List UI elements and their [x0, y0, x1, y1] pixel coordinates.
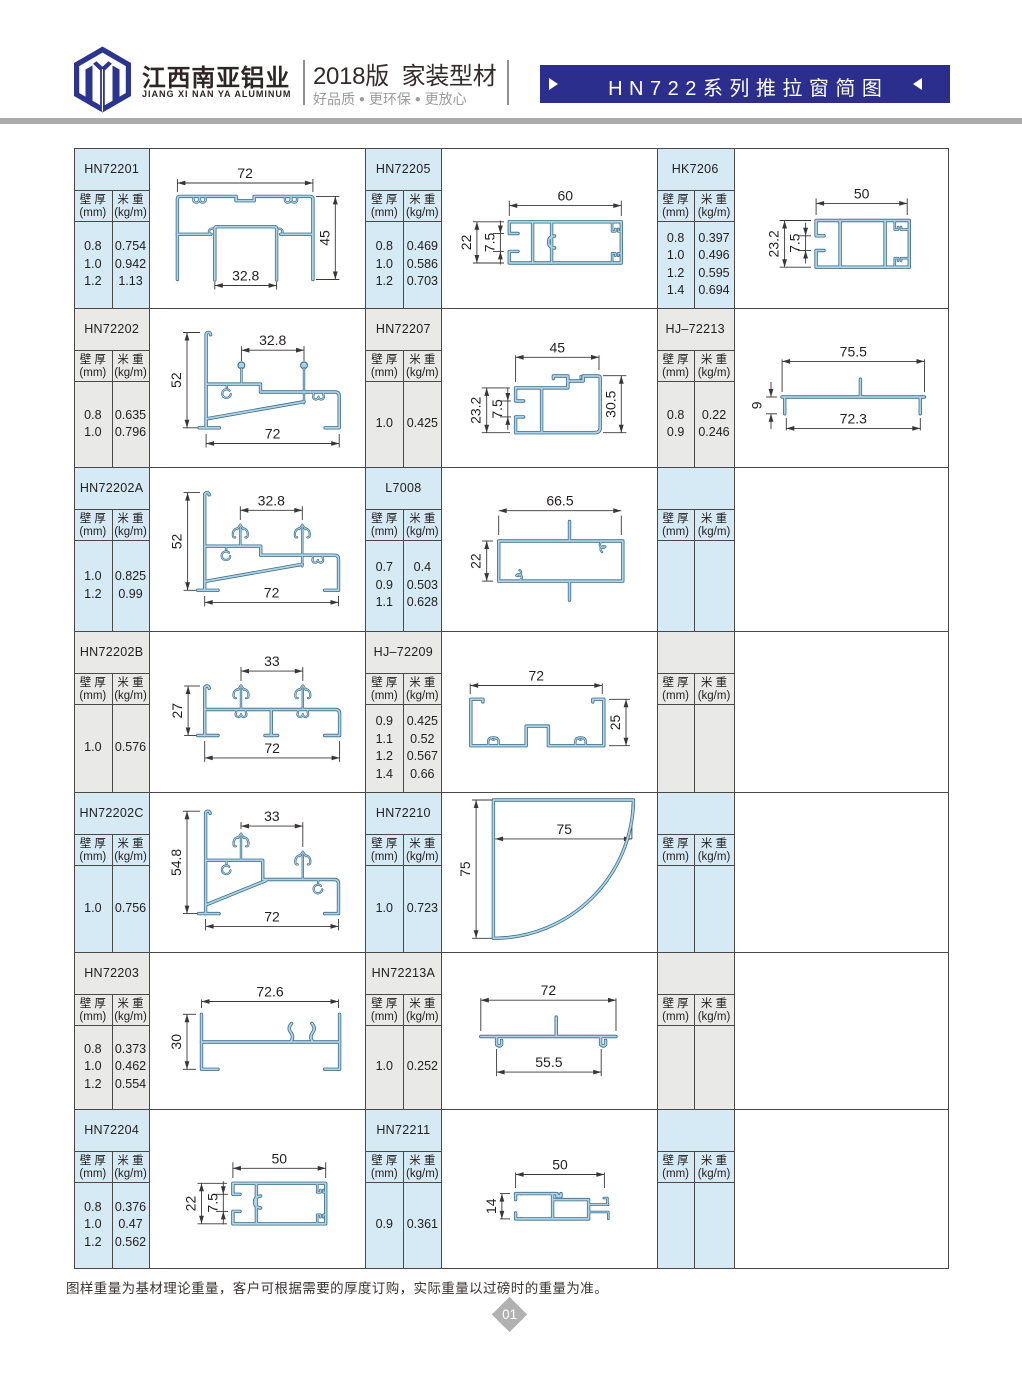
svg-text:50: 50: [272, 1150, 288, 1166]
svg-text:45: 45: [317, 230, 333, 246]
svg-text:50: 50: [553, 1157, 569, 1173]
svg-text:75: 75: [457, 861, 473, 877]
svg-text:22: 22: [458, 234, 474, 250]
svg-text:52: 52: [169, 533, 185, 549]
svg-text:66.5: 66.5: [547, 493, 574, 509]
svg-text:72: 72: [264, 584, 280, 600]
svg-text:72: 72: [265, 426, 281, 442]
svg-text:75.5: 75.5: [839, 343, 866, 359]
svg-text:52: 52: [168, 372, 184, 388]
svg-text:7.5: 7.5: [482, 233, 498, 253]
svg-text:7.5: 7.5: [205, 1193, 221, 1213]
svg-text:72: 72: [265, 908, 281, 924]
svg-text:72: 72: [238, 165, 254, 181]
svg-text:30: 30: [168, 1034, 184, 1050]
svg-text:45: 45: [550, 339, 566, 355]
svg-text:72: 72: [529, 668, 545, 684]
svg-text:72.3: 72.3: [839, 410, 866, 426]
svg-text:14: 14: [483, 1198, 499, 1214]
svg-text:30.5: 30.5: [603, 390, 619, 417]
svg-text:75: 75: [557, 821, 573, 837]
svg-text:72.6: 72.6: [257, 984, 284, 1000]
svg-text:72: 72: [541, 982, 557, 998]
svg-text:32.8: 32.8: [259, 332, 286, 348]
svg-text:33: 33: [264, 808, 280, 824]
svg-text:54.8: 54.8: [168, 849, 184, 876]
svg-text:25: 25: [607, 715, 623, 731]
svg-text:9: 9: [748, 401, 764, 409]
svg-text:33: 33: [264, 653, 280, 669]
svg-text:55.5: 55.5: [536, 1054, 563, 1070]
svg-text:23.2: 23.2: [468, 396, 484, 423]
svg-text:7.5: 7.5: [489, 399, 505, 419]
svg-text:27: 27: [169, 703, 185, 719]
svg-text:22: 22: [468, 553, 484, 569]
svg-text:32.8: 32.8: [258, 492, 285, 508]
svg-text:23.2: 23.2: [765, 230, 781, 257]
svg-text:32.8: 32.8: [232, 268, 259, 284]
svg-text:50: 50: [853, 185, 869, 201]
svg-text:72: 72: [265, 740, 281, 756]
svg-text:60: 60: [558, 188, 574, 204]
svg-text:22: 22: [183, 1196, 199, 1212]
svg-text:7.5: 7.5: [786, 233, 802, 253]
